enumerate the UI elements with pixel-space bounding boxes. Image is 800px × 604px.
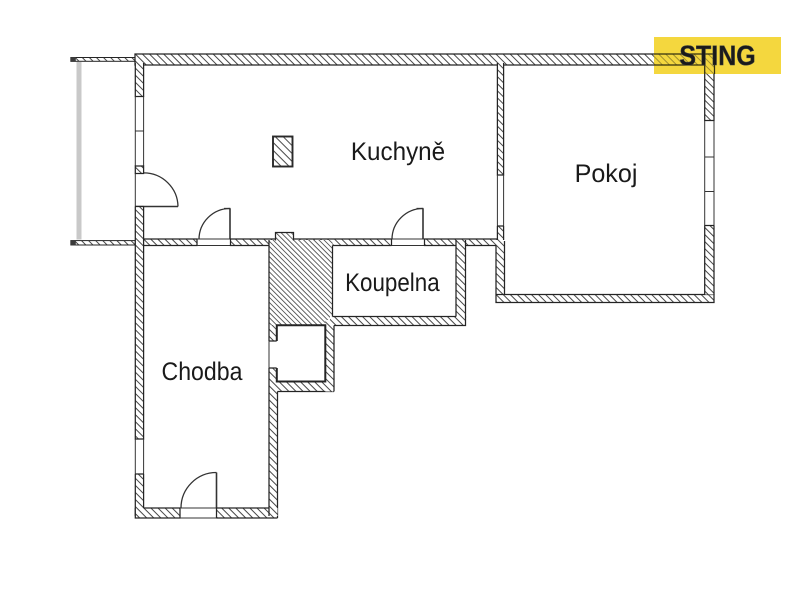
svg-text:Pokoj: Pokoj <box>575 160 638 188</box>
svg-text:STING: STING <box>679 40 755 71</box>
svg-text:Koupelna: Koupelna <box>345 269 440 297</box>
svg-text:Chodba: Chodba <box>162 358 244 386</box>
svg-text:Kuchyně: Kuchyně <box>351 138 445 166</box>
